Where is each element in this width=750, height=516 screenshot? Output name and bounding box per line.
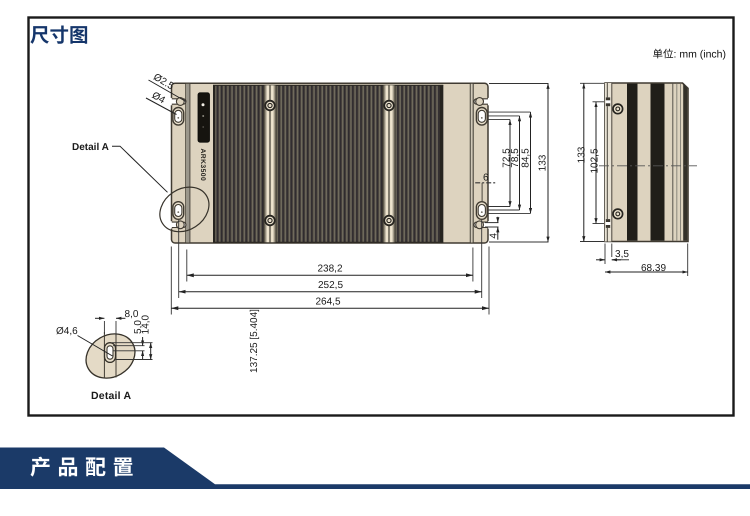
svg-text:Detail A: Detail A xyxy=(91,390,132,402)
svg-text:137.25 [5.404]: 137.25 [5.404] xyxy=(249,309,260,373)
svg-text:252,5: 252,5 xyxy=(318,280,343,291)
svg-text:Detail A: Detail A xyxy=(72,142,109,153)
svg-text:68.39: 68.39 xyxy=(641,263,666,274)
svg-text:3,5: 3,5 xyxy=(615,249,629,260)
svg-text:8,0: 8,0 xyxy=(125,309,139,320)
svg-text:: mm (inch): : mm (inch) xyxy=(674,49,727,61)
svg-text:264,5: 264,5 xyxy=(315,297,340,308)
svg-text:84,5: 84,5 xyxy=(520,148,531,168)
svg-text:14,0: 14,0 xyxy=(140,314,151,334)
svg-text:133: 133 xyxy=(538,154,549,171)
svg-text:6: 6 xyxy=(483,173,489,184)
svg-text:4: 4 xyxy=(488,233,499,239)
svg-text:Ø4,6: Ø4,6 xyxy=(56,326,78,337)
svg-text:ARK3500: ARK3500 xyxy=(199,149,206,182)
svg-text:133: 133 xyxy=(576,146,587,163)
svg-text:238,2: 238,2 xyxy=(317,264,342,275)
svg-text:102,5: 102,5 xyxy=(589,148,600,173)
